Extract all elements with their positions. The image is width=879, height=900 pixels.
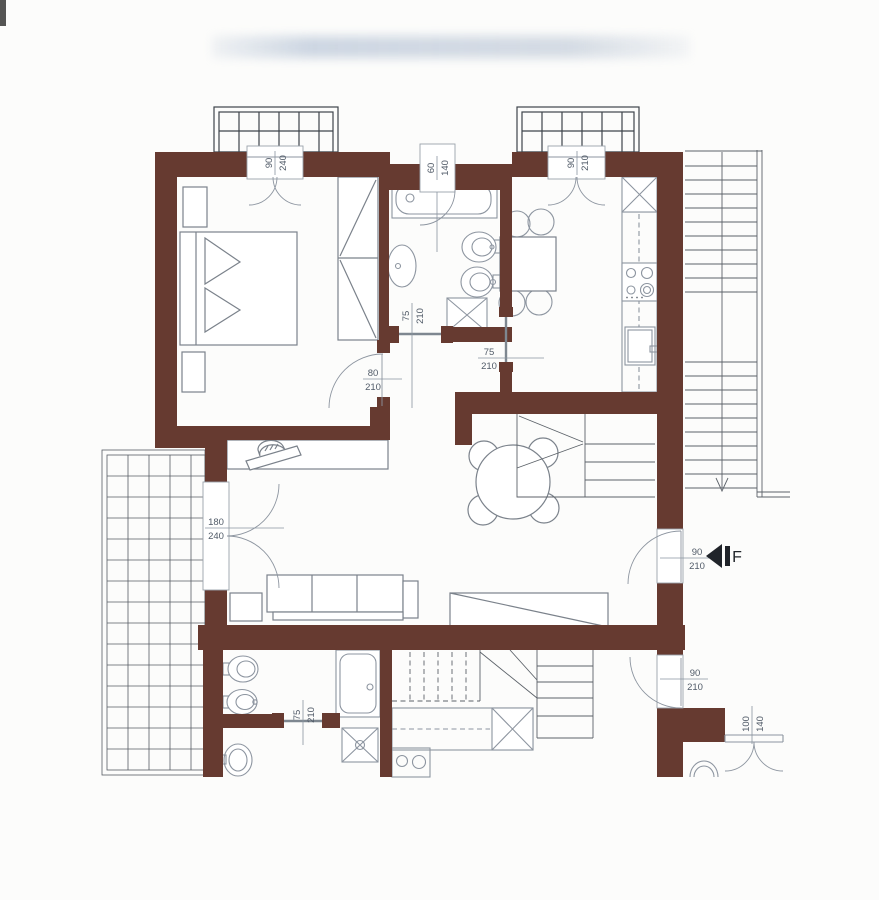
oven <box>625 327 659 365</box>
svg-text:80: 80 <box>368 368 379 379</box>
svg-text:240: 240 <box>278 155 289 171</box>
kitchen-sink <box>622 177 657 212</box>
balcony-top-left <box>214 107 338 152</box>
round-table <box>476 445 550 519</box>
floor-plan-page: 90 240 60 140 90 210 75 210 <box>0 0 879 900</box>
dim-lower-bathroom-door: 75 210 <box>292 700 317 745</box>
side-table <box>230 593 262 621</box>
svg-text:140: 140 <box>755 716 766 732</box>
toilet-partial <box>690 761 718 777</box>
entrance-marker: F <box>706 544 742 568</box>
lower-unit-door <box>630 655 683 708</box>
stove <box>622 263 657 301</box>
lower-kitchen-counter <box>392 708 533 777</box>
washbasin <box>386 245 416 287</box>
terrace <box>102 450 205 775</box>
bedroom-door <box>329 354 383 408</box>
bedroom-furniture <box>180 177 378 392</box>
svg-text:210: 210 <box>415 308 426 324</box>
toilet <box>223 690 257 715</box>
entrance-arrow-icon <box>706 544 722 568</box>
svg-text:60: 60 <box>426 163 437 174</box>
bathtub <box>336 650 380 717</box>
toilet <box>461 267 500 297</box>
svg-text:75: 75 <box>292 710 303 721</box>
dim-bedroom-door: 80 210 <box>363 368 402 393</box>
round-table-set <box>468 438 559 525</box>
svg-text:180: 180 <box>208 517 224 528</box>
entrance-letter: F <box>732 549 742 566</box>
scan-artifact <box>0 0 6 26</box>
svg-text:75: 75 <box>484 347 495 358</box>
svg-text:210: 210 <box>687 682 703 693</box>
faded-scan-smudge <box>212 36 690 58</box>
nightstand <box>182 352 205 392</box>
bidet <box>462 232 500 262</box>
svg-text:210: 210 <box>481 361 497 372</box>
svg-text:210: 210 <box>306 707 317 723</box>
dim-bathroom-door: 75 210 <box>401 303 426 408</box>
sideboard <box>450 593 608 627</box>
chair <box>528 209 554 235</box>
balcony-top-right <box>517 107 639 152</box>
svg-text:90: 90 <box>566 158 577 169</box>
svg-text:100: 100 <box>741 716 752 732</box>
living-dining-furniture <box>227 414 655 627</box>
sofa <box>267 575 418 620</box>
svg-text:240: 240 <box>208 531 224 542</box>
svg-text:210: 210 <box>365 382 381 393</box>
bidet <box>223 656 258 682</box>
svg-text:90: 90 <box>264 158 275 169</box>
svg-text:75: 75 <box>401 311 412 322</box>
kitchen-fixtures <box>499 177 659 392</box>
lower-window <box>725 735 783 771</box>
dim-lower-window: 100 140 <box>741 706 766 744</box>
stove <box>392 748 430 777</box>
main-bathroom-fixtures <box>386 180 500 332</box>
wardrobe <box>338 177 378 340</box>
staircase-external <box>685 150 790 497</box>
svg-text:90: 90 <box>692 547 703 558</box>
entrance-door <box>628 529 683 584</box>
kitchen-window <box>548 146 605 205</box>
shower <box>342 728 378 762</box>
svg-text:210: 210 <box>580 155 591 171</box>
double-bed <box>180 232 297 345</box>
svg-text:90: 90 <box>690 668 701 679</box>
floor-plan-drawing: 90 240 60 140 90 210 75 210 <box>0 0 879 900</box>
svg-text:210: 210 <box>689 561 705 572</box>
chair <box>526 289 552 315</box>
svg-text:140: 140 <box>440 160 451 176</box>
washbasin <box>221 744 252 776</box>
tv-console <box>227 440 388 470</box>
nightstand <box>183 187 207 227</box>
